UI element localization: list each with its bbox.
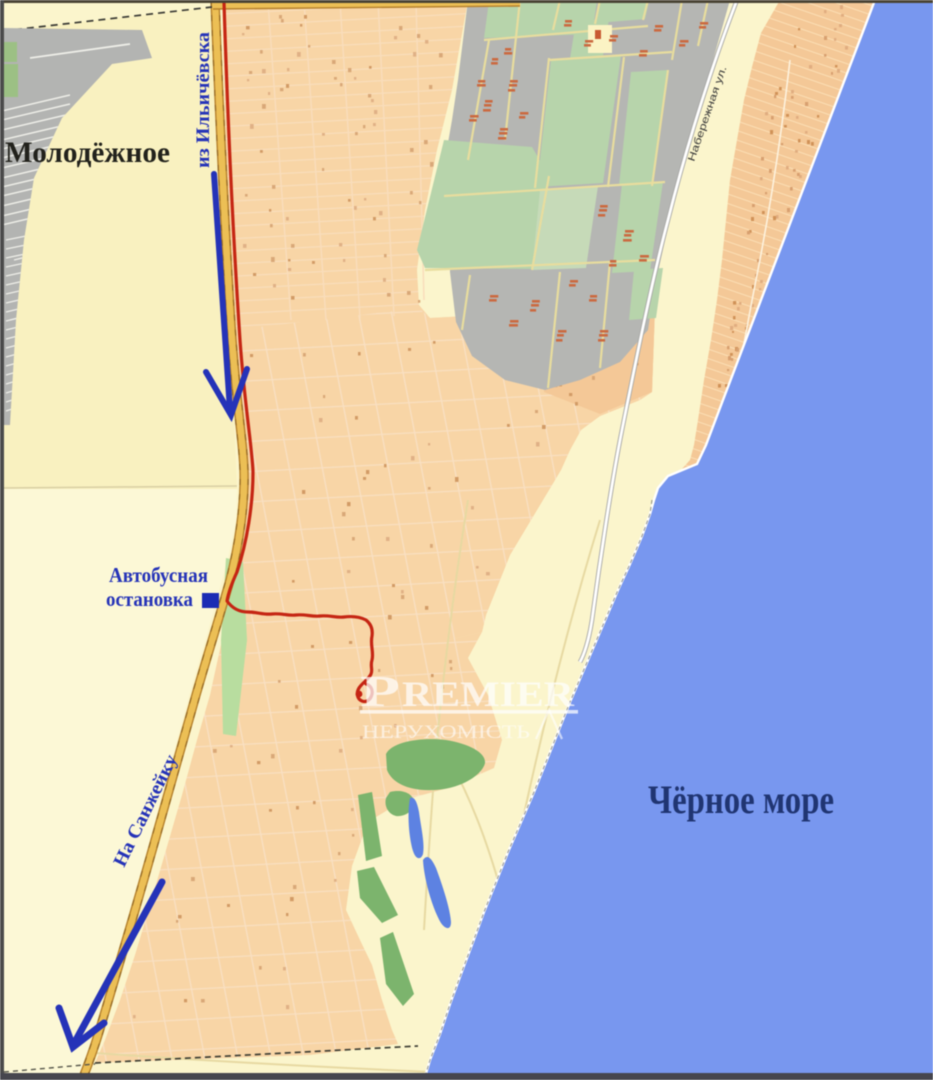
svg-text:Автобусная: Автобусная: [109, 563, 208, 587]
svg-text:Молодёжное: Молодёжное: [5, 136, 170, 169]
svg-text:остановка: остановка: [106, 587, 193, 611]
svg-text:Чёрное море: Чёрное море: [648, 777, 834, 822]
svg-text:НЕРУХОМІСТЬ: НЕРУХОМІСТЬ: [362, 722, 530, 743]
svg-text:из Ильичёвска: из Ильичёвска: [193, 31, 214, 168]
svg-text:P: P: [360, 667, 400, 716]
